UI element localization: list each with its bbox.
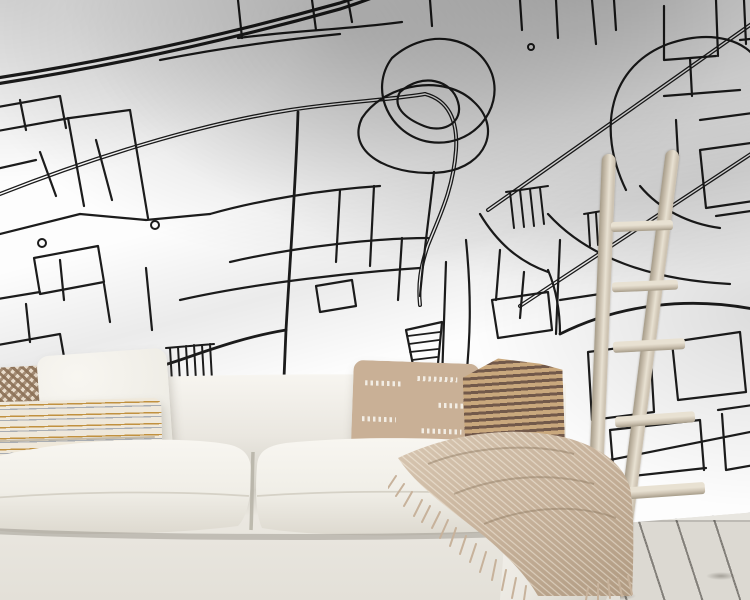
ladder-foot-shadow <box>706 572 736 580</box>
ladder-rung <box>612 280 678 293</box>
room-scene <box>0 0 750 600</box>
throw-blanket <box>388 428 640 600</box>
seat-cushion-left <box>0 440 251 534</box>
cushion-gap-shadow <box>251 452 253 530</box>
